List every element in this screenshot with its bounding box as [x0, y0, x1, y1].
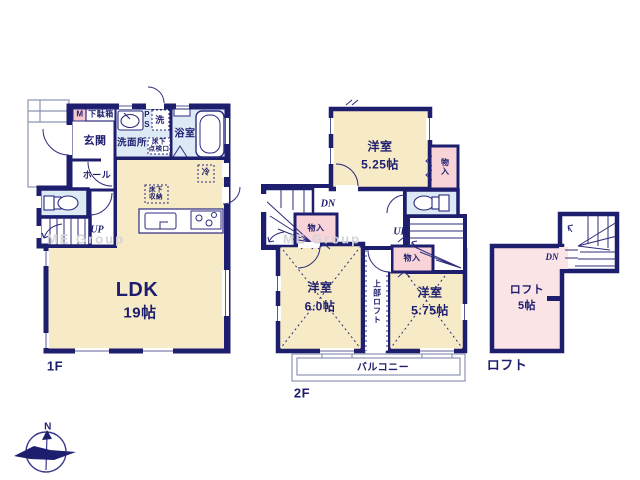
label-meter: M: [76, 111, 83, 120]
label-bed3-area: 5.75帖: [411, 304, 449, 317]
label-up-2f: UP: [393, 226, 406, 237]
label-shoebox: 下駄箱: [88, 111, 114, 120]
label-closet-right: 物入: [404, 255, 421, 264]
label-ldk: LDK: [116, 279, 159, 301]
loft-plan: [492, 214, 617, 351]
porch-outline: [28, 100, 69, 187]
label-upper-loft: 上部ロフト: [372, 280, 381, 325]
label-floor2: 2F: [294, 387, 310, 402]
label-bed2-area: 6.0帖: [305, 300, 336, 313]
label-loft-name: ロフト: [510, 284, 545, 296]
label-washer: 洗: [155, 115, 165, 125]
label-hall: ホール: [83, 170, 112, 180]
label-bed3: 洋室: [417, 286, 442, 299]
label-dn-2f: DN: [321, 198, 335, 209]
label-bed1: 洋室: [367, 140, 392, 153]
label-bed1-area: 5.25帖: [361, 158, 399, 171]
label-washroom: 洗面所: [117, 139, 147, 150]
label-floor-storage: 床下 収納: [149, 187, 163, 202]
washroom-sink-icon: [118, 111, 143, 130]
label-inspection-hatch: 床下 点検口: [149, 139, 170, 154]
label-closet-bed1: 物入: [440, 158, 449, 176]
kitchen-counter: [139, 209, 223, 233]
watermark-2f: ME Group: [283, 233, 361, 248]
floorplan-page: ME Group ME Group M 下駄箱 玄関 洗面所 PS 洗 床下 点…: [0, 0, 640, 480]
bathtub-icon: [196, 111, 224, 157]
label-genkan: 玄関: [84, 135, 107, 147]
label-loft-area: 5帖: [518, 300, 536, 312]
label-balcony: バルコニー: [357, 362, 409, 373]
label-ps: PS: [142, 110, 151, 130]
toilet1f-icon: [44, 196, 78, 210]
toilet2f-icon: [414, 195, 449, 211]
backdoor-arc: [148, 87, 164, 103]
label-compass-north: N: [44, 421, 52, 432]
label-bath: 浴室: [175, 128, 196, 139]
label-floor1: 1F: [47, 360, 63, 375]
label-closet-mid: 物入: [308, 225, 325, 234]
loft-wall-stub: [547, 296, 562, 301]
compass: [14, 430, 76, 472]
label-loft-floor: ロフト: [487, 359, 528, 374]
label-fridge: 冷: [202, 169, 211, 178]
watermark-1f: ME Group: [47, 233, 125, 248]
porch: [28, 100, 69, 187]
label-dn-loft: DN: [546, 252, 559, 262]
label-ldk-area: 19帖: [123, 306, 156, 323]
compass-wing-icon: [14, 446, 76, 460]
label-bed2: 洋室: [307, 281, 332, 294]
bath-counter: [174, 109, 190, 116]
label-up-1f: UP: [90, 224, 103, 235]
